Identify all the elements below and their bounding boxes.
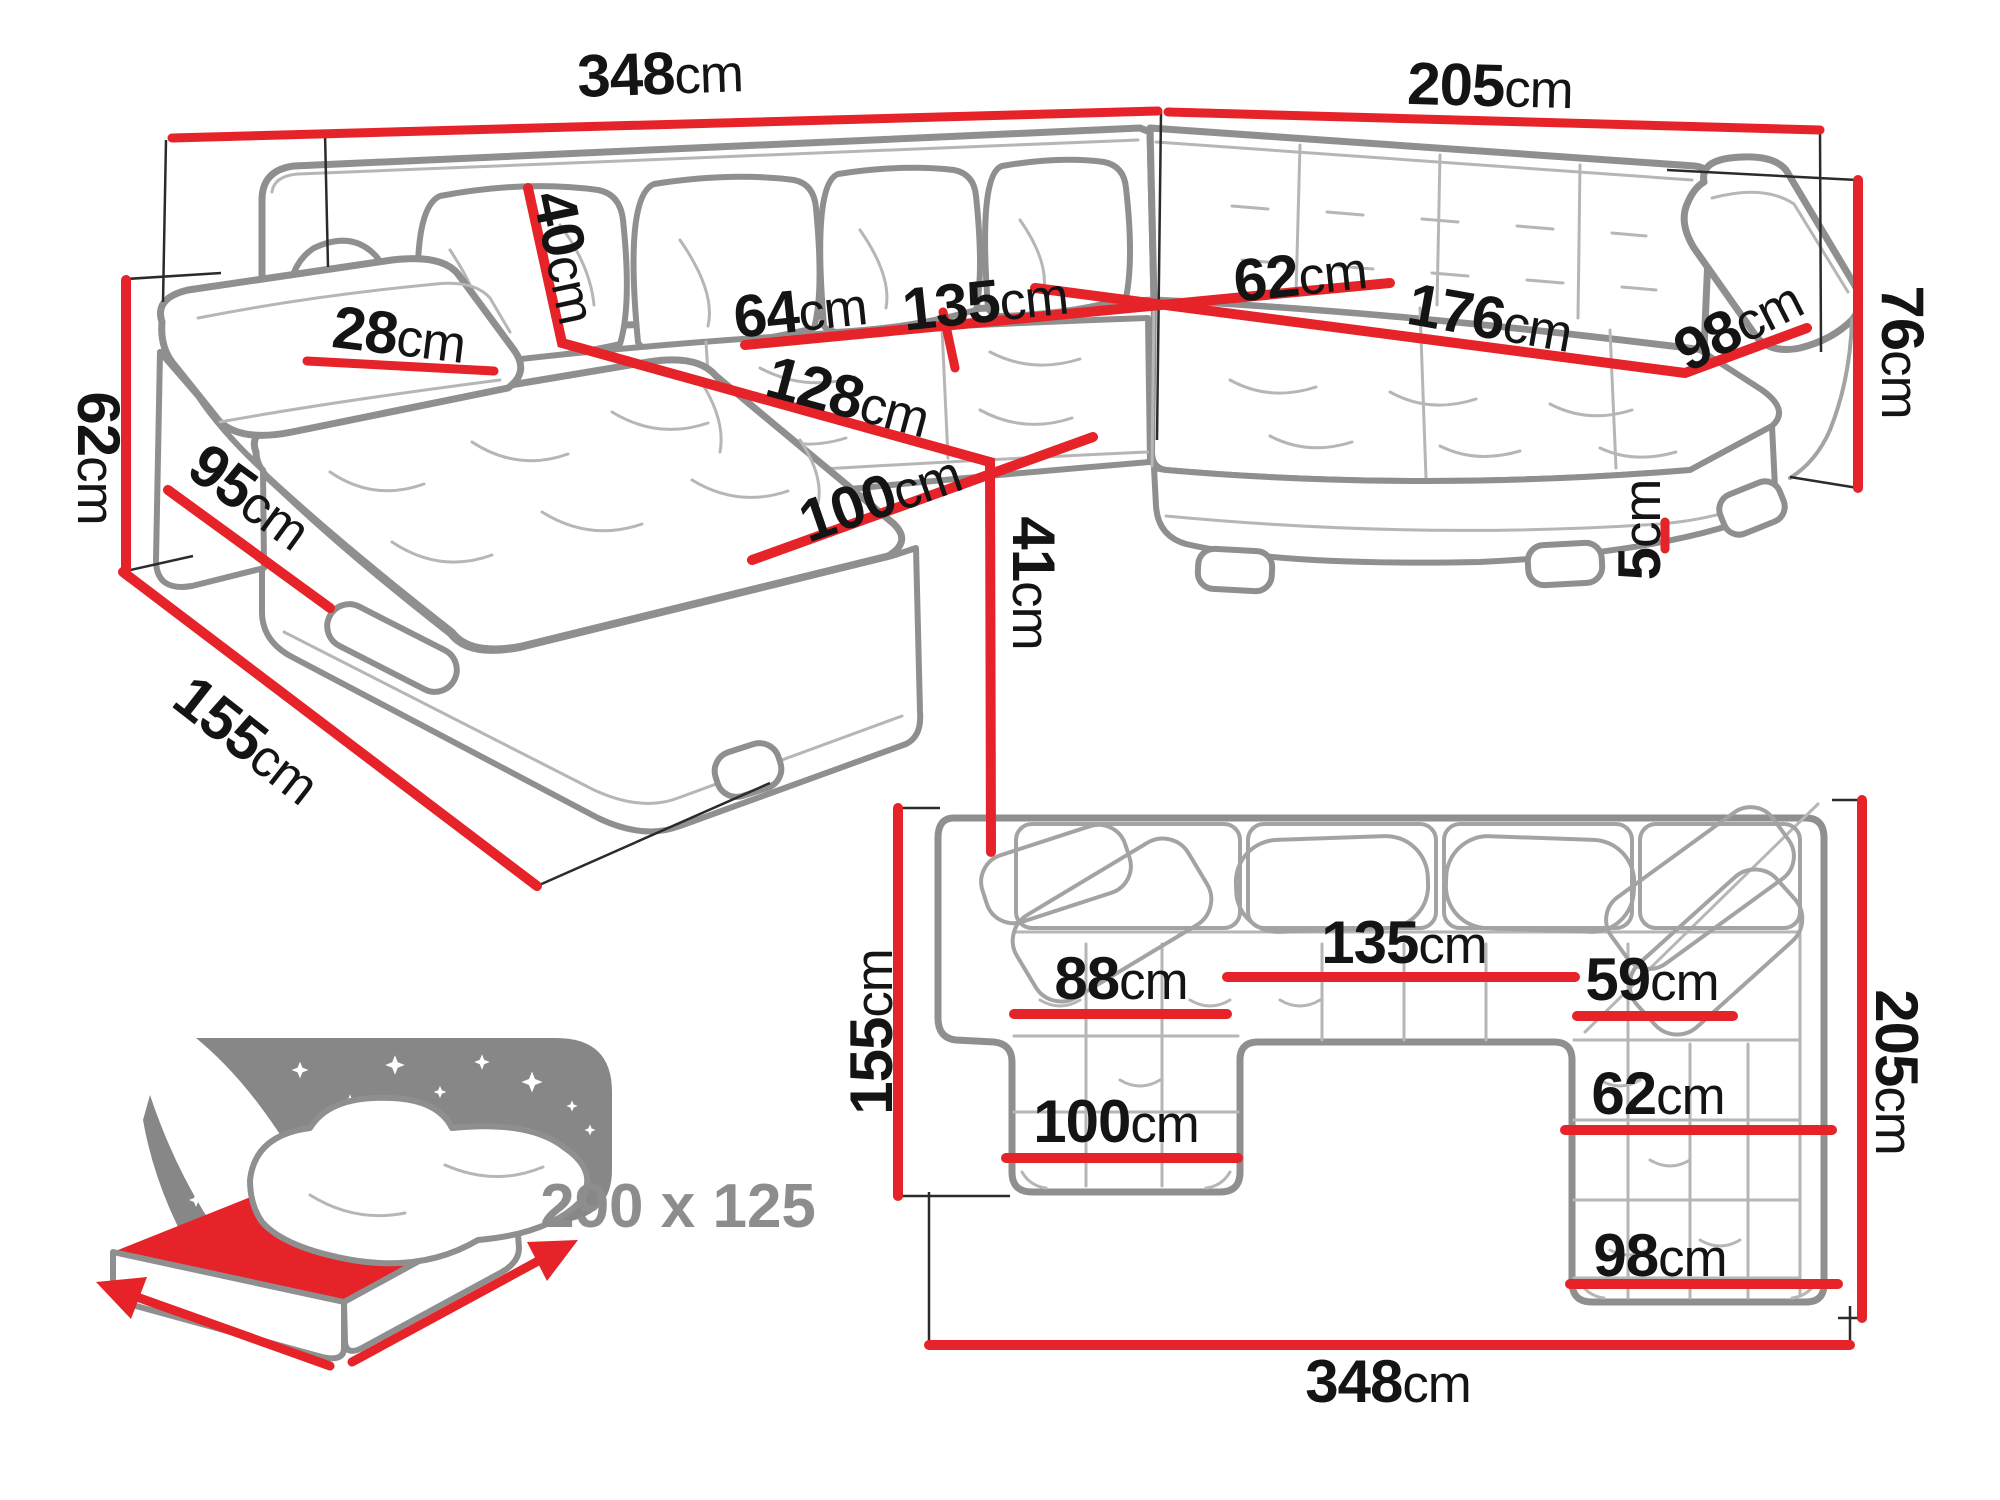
dim-plan-chaise-100: 100cm: [1033, 1092, 1199, 1152]
dim-value: 62: [1230, 241, 1301, 314]
dim-unit: cm: [1295, 241, 1369, 307]
dim-value: 76: [1869, 285, 1936, 350]
sofa-dimensions-diagram: 348cm 205cm 76cm 62cm 28cm 40cm 64cm 135…: [0, 0, 2000, 1500]
dim-unit: cm: [1001, 581, 1060, 649]
dim-value: 28: [329, 293, 401, 367]
dim-3d-seat-64: 64cm: [731, 274, 870, 348]
dim-value: 205: [1863, 989, 1930, 1086]
dim-value: 41: [1000, 516, 1067, 581]
dim-3d-seat-height-41: 41cm: [1003, 516, 1063, 649]
dim-unit: cm: [66, 456, 125, 524]
dim-value: 348: [576, 40, 675, 110]
dim-value: 5: [1606, 548, 1673, 580]
dim-unit: cm: [673, 44, 743, 105]
dim-value: 62: [65, 391, 132, 456]
dim-unit: cm: [1499, 294, 1577, 364]
dim-unit: cm: [1656, 1067, 1724, 1126]
dim-plan-depth-205: 205cm: [1866, 989, 1926, 1155]
dim-value: 348: [1305, 1348, 1402, 1415]
dim-value: 100: [1033, 1088, 1130, 1155]
dim-plan-end-98: 98cm: [1593, 1226, 1726, 1286]
dim-unit: cm: [1402, 1355, 1470, 1414]
dim-plan-corner-59: 59cm: [1585, 950, 1718, 1010]
dim-unit: cm: [1658, 1229, 1726, 1288]
dim-unit: cm: [1119, 952, 1187, 1011]
dim-3d-seat-62: 62cm: [1231, 238, 1370, 312]
dim-value: 155: [838, 1018, 905, 1115]
dim-3d-back-height-76: 76cm: [1872, 285, 1932, 418]
dim-plan-seat-135: 135cm: [1321, 913, 1487, 973]
dim-plan-depth-155: 155cm: [842, 949, 902, 1115]
dim-value: 135: [1321, 909, 1418, 976]
sleeper-bed-icon: [96, 1038, 612, 1366]
dim-plan-width-348: 348cm: [1305, 1352, 1471, 1412]
dim-unit: cm: [845, 949, 904, 1017]
dim-value: 64: [730, 277, 801, 350]
dim-unit: cm: [1418, 916, 1486, 975]
dim-value: 59: [1585, 946, 1650, 1013]
dim-value: 135: [899, 267, 1003, 344]
dim-unit: cm: [1130, 1095, 1198, 1154]
dim-value: 62: [1591, 1060, 1656, 1127]
dim-3d-width-348: 348cm: [576, 41, 743, 107]
dim-unit: cm: [1504, 59, 1574, 120]
dim-unit: cm: [1864, 1086, 1923, 1154]
dim-3d-leg-height-5: 5cm: [1610, 480, 1670, 581]
dim-unit: cm: [1650, 953, 1718, 1012]
dim-unit: cm: [1613, 480, 1672, 548]
sleeping-area-size-label: 290 x 125: [540, 1176, 816, 1238]
dim-unit: cm: [393, 308, 468, 375]
dim-3d-arm-height-62: 62cm: [68, 391, 128, 524]
dim-plan-seat-88: 88cm: [1054, 949, 1187, 1009]
dim-unit: cm: [996, 266, 1070, 332]
dim-value: 205: [1406, 50, 1505, 120]
dim-unit: cm: [795, 277, 869, 343]
dim-value: 88: [1054, 945, 1119, 1012]
dim-unit: cm: [534, 250, 606, 329]
sofa-3d-drawing: [156, 128, 1860, 831]
dim-value: 98: [1593, 1222, 1658, 1289]
dim-unit: cm: [1870, 350, 1929, 418]
dim-plan-seat-62: 62cm: [1591, 1064, 1724, 1124]
dim-3d-depth-205: 205cm: [1406, 54, 1573, 118]
